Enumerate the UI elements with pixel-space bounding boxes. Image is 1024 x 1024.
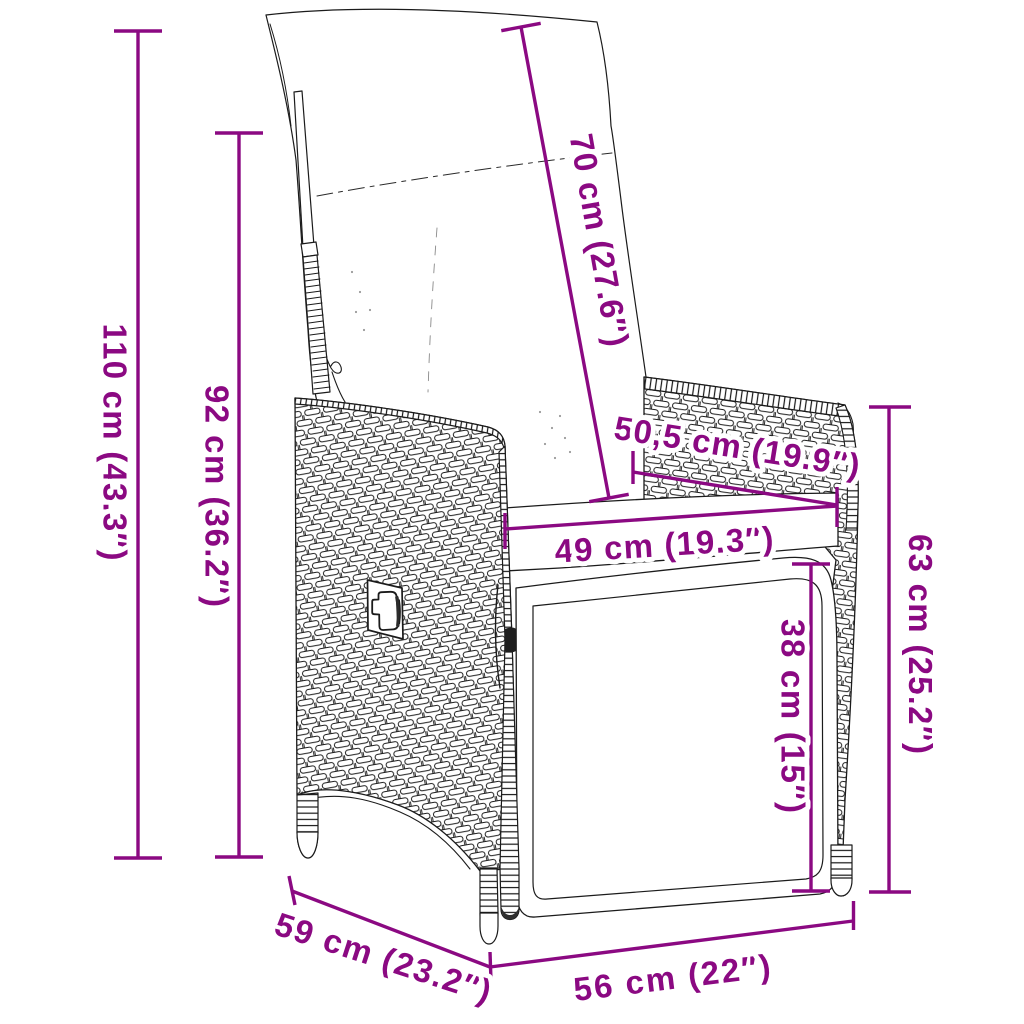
svg-text:92 cm (36.2″): 92 cm (36.2″)	[199, 385, 236, 607]
svg-text:38 cm (15″): 38 cm (15″)	[775, 619, 812, 813]
svg-text:110 cm (43.3″): 110 cm (43.3″)	[97, 324, 134, 561]
svg-text:63 cm (25.2″): 63 cm (25.2″)	[902, 534, 939, 754]
